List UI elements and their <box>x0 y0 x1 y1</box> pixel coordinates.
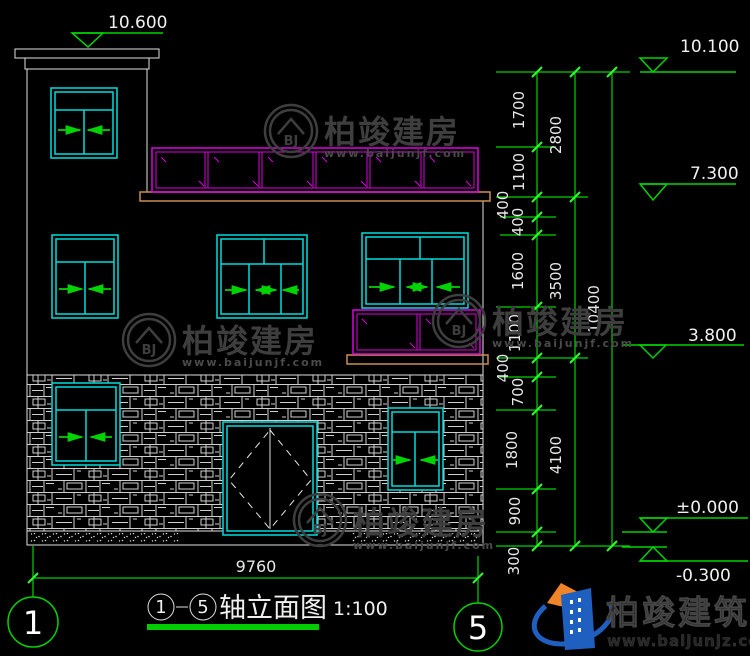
watermark-brand: 柏竣建房 <box>353 504 489 542</box>
first-floor-window-left <box>52 383 120 465</box>
dim-700: 700 <box>509 378 527 407</box>
dim-400-b: 400 <box>509 208 527 237</box>
watermark-top: BJ 柏竣建房 www.baijunjf.com <box>265 105 466 160</box>
elevation-drawing-canvas: 1700 1100 400 400 1600 1100 400 700 1800… <box>0 0 750 656</box>
dim-1100-upper: 1100 <box>510 153 528 191</box>
title-axis-start: 1 <box>155 597 166 618</box>
plinth-stipple-left <box>29 533 179 543</box>
dim-2800: 2800 <box>547 116 565 154</box>
second-floor-window-left <box>52 235 118 318</box>
watermark-left: BJ 柏竣建房 www.baijunjf.com <box>123 314 324 369</box>
elevation-triangle-icon <box>72 33 103 47</box>
elevation-level3: 7.300 <box>640 164 739 200</box>
elevation-triangle-icon <box>640 58 667 72</box>
elevation-triangle-icon <box>640 345 666 358</box>
watermark-url: www.baijunjf.com <box>324 147 466 160</box>
dim-900: 900 <box>506 497 524 526</box>
watermark-monogram: BJ <box>313 523 328 538</box>
roof-terrace-ledge <box>140 192 490 201</box>
elevation-value-below: -0.300 <box>676 566 731 586</box>
elevation-value-level2: 3.800 <box>688 326 737 346</box>
axis-bubble-5: 5 <box>454 603 502 651</box>
dim-1600: 1600 <box>509 252 527 290</box>
watermark-url: www.baijunjf.com <box>182 356 324 369</box>
elevation-value-level3: 7.300 <box>690 164 739 184</box>
watermark-monogram: BJ <box>452 324 467 339</box>
elevation-triangle-icon <box>640 518 667 532</box>
elevation-value-ground: ±0.000 <box>676 498 739 518</box>
elevation-roof: 10.100 <box>640 37 739 72</box>
watermark-monogram: BJ <box>284 134 299 149</box>
axis-bubble-1: 1 <box>8 597 58 647</box>
drawing-title: 轴立面图 <box>219 593 327 624</box>
title-axis-end: 5 <box>197 597 208 618</box>
title-block: 1 5 轴立面图 1:100 <box>147 593 388 630</box>
watermark-url: www.baijunjf.com <box>492 337 634 350</box>
company-logo: 柏竣建筑 www.baijunjz.com <box>528 583 750 653</box>
cad-elevation-svg: 1700 1100 400 400 1600 1100 400 700 1800… <box>0 0 750 656</box>
watermark-brand: 柏竣建房 <box>492 303 628 341</box>
elevation-ground: ±0.000 <box>622 498 748 532</box>
elevation-tower-top: 10.600 <box>72 13 167 47</box>
elevation-level2: 3.800 <box>622 326 744 358</box>
balcony-ledge <box>347 355 488 364</box>
axis-number-left: 1 <box>23 604 43 642</box>
dim-4100: 4100 <box>547 436 565 474</box>
elevation-value-roof: 10.100 <box>680 37 739 57</box>
dim-300: 300 <box>505 547 523 576</box>
entrance-door <box>223 422 317 535</box>
dim-9760-width: 9760 <box>236 557 277 576</box>
elevation-below-ground: -0.300 <box>622 547 748 586</box>
first-floor-window-right <box>388 408 443 490</box>
elevation-triangle-icon <box>640 184 667 200</box>
watermark-brand: 柏竣建房 <box>324 113 460 151</box>
second-floor-window-middle <box>217 235 307 318</box>
logo-brand: 柏竣建筑 <box>606 593 750 632</box>
dim-3500: 3500 <box>547 262 565 300</box>
watermark-url: www.baijunjf.com <box>353 539 495 552</box>
elevation-triangle-icon <box>640 547 667 561</box>
dim-1700: 1700 <box>510 91 528 129</box>
title-underline <box>147 624 319 630</box>
drawing-scale: 1:100 <box>333 598 388 620</box>
logo-url: www.baijunjz.com <box>607 632 750 650</box>
tower-cap-band <box>25 58 149 69</box>
axis-number-right: 5 <box>468 609 488 647</box>
elevation-value-tower: 10.600 <box>108 13 167 33</box>
watermark-brand: 柏竣建房 <box>182 322 318 360</box>
tower-window <box>51 88 117 158</box>
watermark-monogram: BJ <box>142 343 157 358</box>
dim-1800: 1800 <box>503 431 521 469</box>
tower-cap-slab <box>15 49 159 58</box>
chain2-labels: 2800 3500 4100 <box>547 116 565 474</box>
